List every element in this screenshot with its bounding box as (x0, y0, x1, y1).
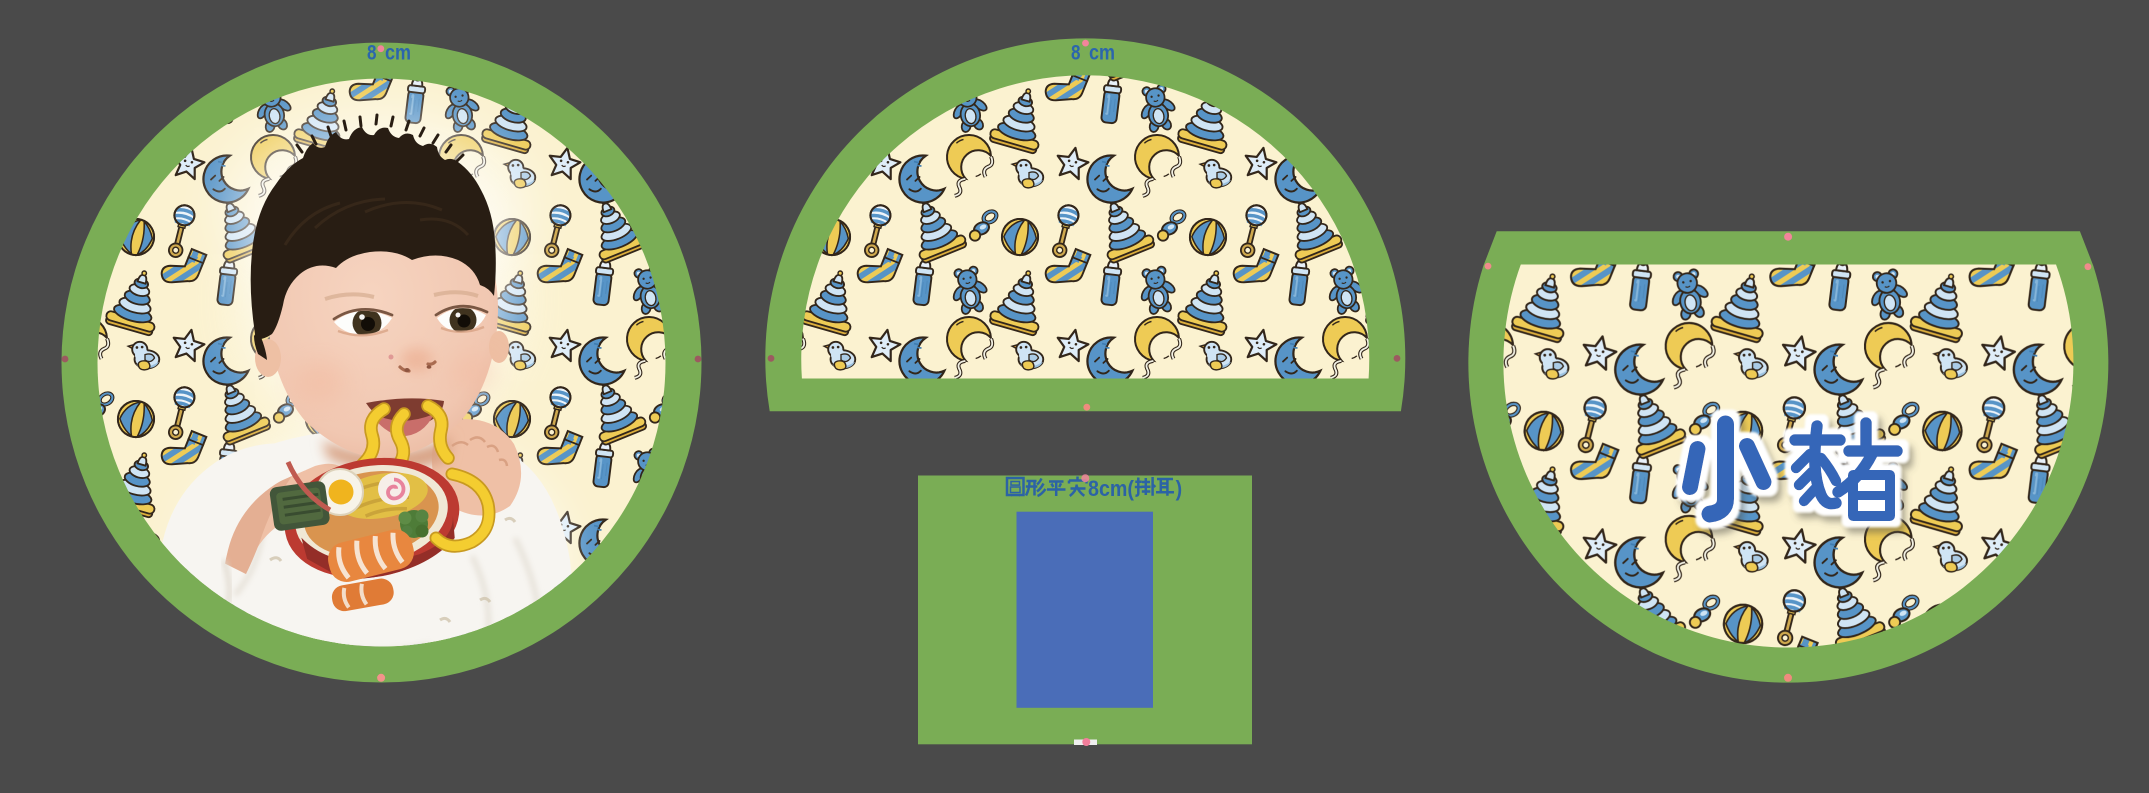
svg-text:8cm(: 8cm( (1088, 476, 1135, 501)
svg-text:8: 8 (367, 42, 377, 65)
svg-text:cm: cm (1089, 42, 1115, 65)
svg-text:8: 8 (1071, 42, 1081, 65)
svg-text:): ) (1176, 476, 1183, 501)
svg-text:cm: cm (385, 42, 411, 65)
